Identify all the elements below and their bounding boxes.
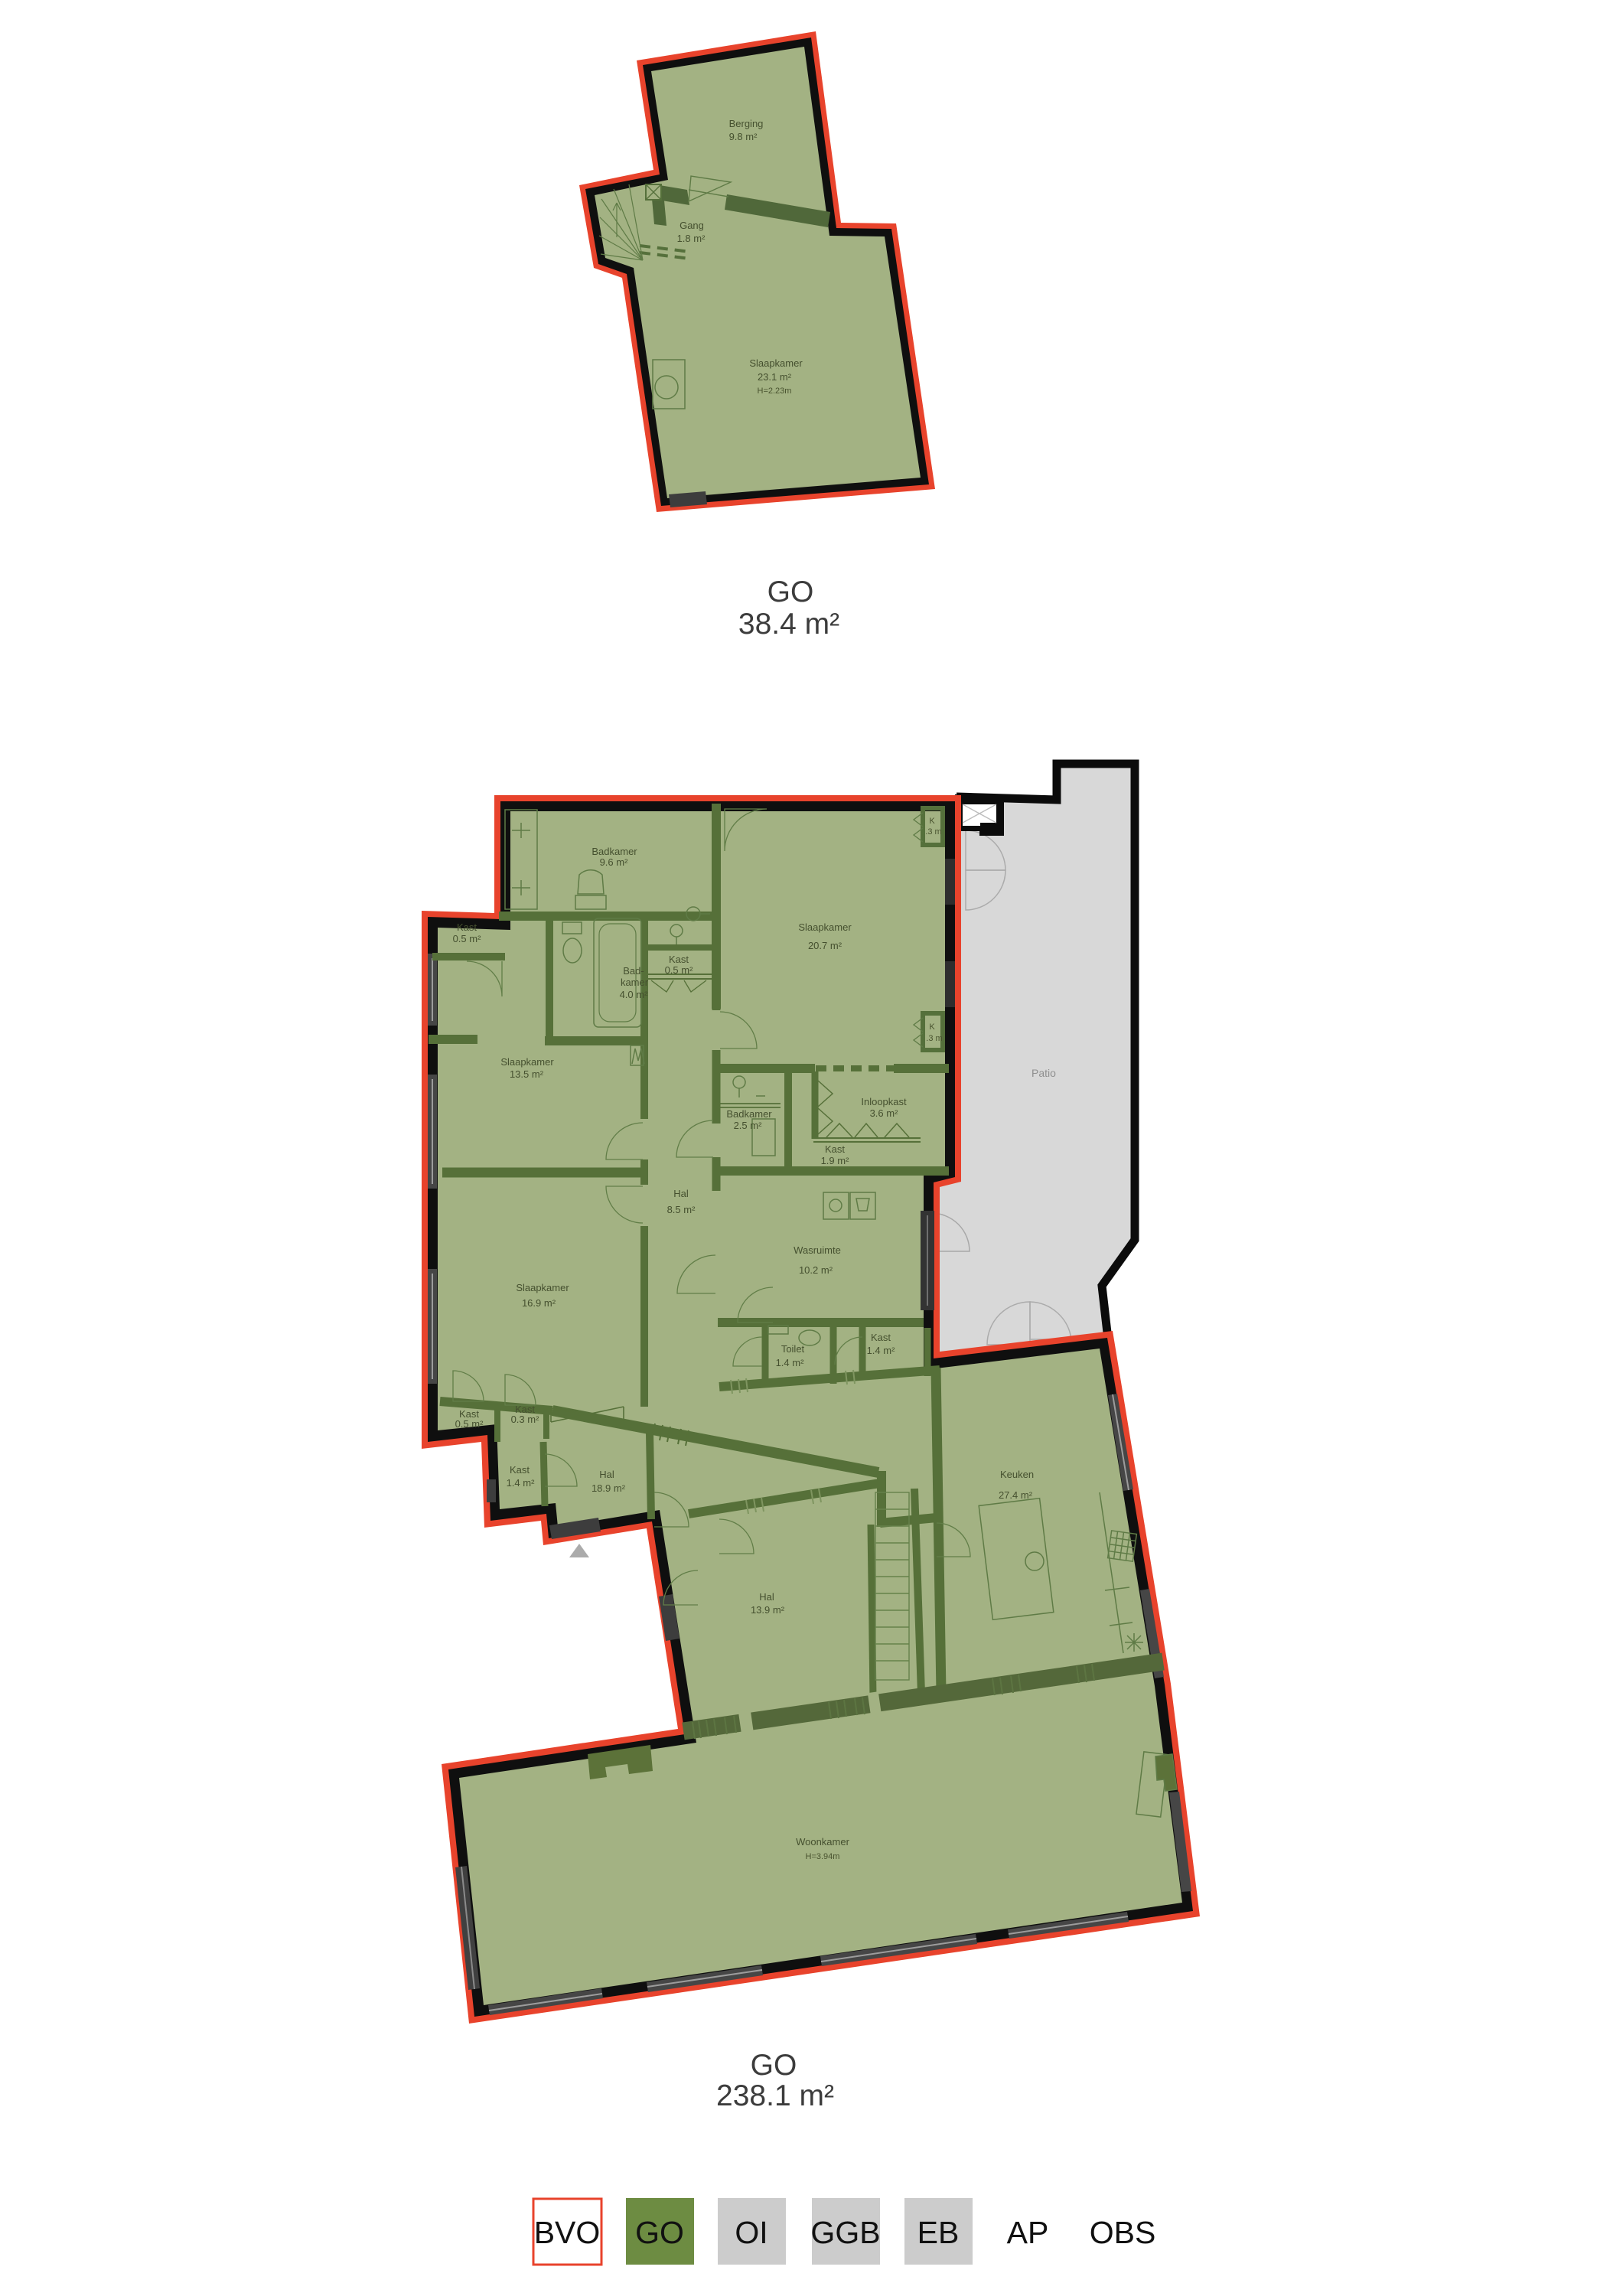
svg-text:OI: OI bbox=[735, 2215, 768, 2250]
svg-text:Slaapkamer: Slaapkamer bbox=[500, 1056, 554, 1068]
svg-text:H=3.94m: H=3.94m bbox=[806, 1852, 840, 1861]
svg-text:1.9 m²: 1.9 m² bbox=[821, 1155, 850, 1166]
svg-text:K: K bbox=[929, 817, 935, 826]
svg-text:Kast: Kast bbox=[871, 1332, 891, 1343]
svg-text:13.5 m²: 13.5 m² bbox=[510, 1068, 544, 1080]
svg-text:Berging: Berging bbox=[729, 118, 764, 129]
svg-text:38.4 m²: 38.4 m² bbox=[738, 608, 839, 641]
svg-text:GO: GO bbox=[768, 576, 814, 608]
svg-text:Hal: Hal bbox=[673, 1188, 689, 1199]
svg-text:GGB: GGB bbox=[810, 2215, 880, 2250]
svg-text:27.4 m²: 27.4 m² bbox=[999, 1489, 1033, 1501]
svg-text:Woonkamer: Woonkamer bbox=[796, 1836, 850, 1848]
svg-text:1.4 m²: 1.4 m² bbox=[507, 1477, 536, 1489]
svg-text:4.0 m²: 4.0 m² bbox=[620, 989, 649, 1000]
svg-text:Bad-: Bad- bbox=[623, 965, 644, 977]
svg-text:K: K bbox=[929, 1022, 935, 1032]
svg-text:0.5 m²: 0.5 m² bbox=[665, 964, 694, 976]
svg-text:20.7 m²: 20.7 m² bbox=[808, 940, 842, 951]
svg-text:.3 m: .3 m bbox=[925, 827, 941, 837]
svg-text:Patio: Patio bbox=[1031, 1067, 1056, 1079]
svg-text:1.4 m²: 1.4 m² bbox=[867, 1345, 896, 1356]
svg-text:kamer: kamer bbox=[621, 977, 649, 988]
svg-text:Slaapkamer: Slaapkamer bbox=[798, 921, 852, 933]
svg-text:18.9 m²: 18.9 m² bbox=[592, 1482, 626, 1494]
svg-text:Inloopkast: Inloopkast bbox=[861, 1096, 907, 1107]
svg-text:Gang: Gang bbox=[680, 220, 704, 231]
svg-text:GO: GO bbox=[751, 2049, 797, 2082]
svg-text:0.5 m²: 0.5 m² bbox=[453, 933, 482, 944]
svg-text:OBS: OBS bbox=[1090, 2215, 1156, 2250]
svg-text:0.5 m²: 0.5 m² bbox=[455, 1418, 484, 1430]
svg-text:3.6 m²: 3.6 m² bbox=[870, 1107, 899, 1119]
svg-text:H=2.23m: H=2.23m bbox=[758, 386, 792, 396]
svg-text:Badkamer: Badkamer bbox=[592, 846, 637, 857]
svg-text:Slaapkamer: Slaapkamer bbox=[749, 357, 803, 369]
svg-text:1.4 m²: 1.4 m² bbox=[776, 1357, 805, 1368]
svg-text:8.5 m²: 8.5 m² bbox=[667, 1204, 696, 1215]
svg-text:13.9 m²: 13.9 m² bbox=[751, 1604, 785, 1616]
svg-text:Hal: Hal bbox=[599, 1469, 614, 1480]
svg-text:9.6 m²: 9.6 m² bbox=[600, 856, 629, 868]
svg-text:Kast: Kast bbox=[457, 921, 477, 933]
svg-text:Kast: Kast bbox=[669, 954, 689, 965]
svg-text:16.9 m²: 16.9 m² bbox=[522, 1297, 556, 1309]
svg-text:Keuken: Keuken bbox=[1000, 1469, 1034, 1480]
svg-text:Badkamer: Badkamer bbox=[726, 1108, 772, 1120]
svg-text:Slaapkamer: Slaapkamer bbox=[516, 1282, 569, 1293]
svg-text:2.5 m²: 2.5 m² bbox=[734, 1120, 763, 1131]
svg-text:23.1 m²: 23.1 m² bbox=[758, 371, 792, 383]
svg-text:9.8 m²: 9.8 m² bbox=[729, 131, 758, 142]
svg-text:.3 m: .3 m bbox=[926, 1034, 942, 1043]
svg-text:BVO: BVO bbox=[534, 2215, 601, 2250]
svg-text:Kast: Kast bbox=[825, 1143, 845, 1155]
svg-text:EB: EB bbox=[917, 2215, 960, 2250]
svg-text:Hal: Hal bbox=[759, 1591, 774, 1603]
svg-text:Wasruimte: Wasruimte bbox=[794, 1244, 841, 1256]
svg-text:Kast: Kast bbox=[510, 1464, 530, 1476]
svg-text:10.2 m²: 10.2 m² bbox=[799, 1264, 833, 1276]
svg-text:Toilet: Toilet bbox=[781, 1343, 805, 1355]
svg-text:GO: GO bbox=[635, 2215, 684, 2250]
svg-text:AP: AP bbox=[1007, 2215, 1049, 2250]
svg-text:0.3 m²: 0.3 m² bbox=[511, 1414, 540, 1425]
svg-text:238.1 m²: 238.1 m² bbox=[716, 2079, 834, 2112]
svg-text:1.8 m²: 1.8 m² bbox=[677, 233, 706, 244]
